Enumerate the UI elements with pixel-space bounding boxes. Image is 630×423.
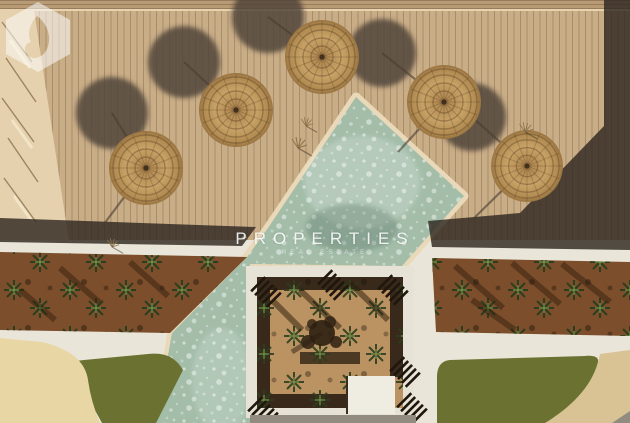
aerial-photo: ✦ PROPERTIES REAL ESTATE xyxy=(0,0,630,423)
umbrella xyxy=(199,73,273,147)
garden-bed-right xyxy=(432,258,630,336)
scene xyxy=(0,0,630,423)
umbrella xyxy=(285,20,359,94)
white-pad xyxy=(347,376,395,414)
umbrella xyxy=(407,65,481,139)
umbrella xyxy=(109,131,183,205)
umbrella xyxy=(491,130,563,202)
grey-path xyxy=(250,415,416,423)
